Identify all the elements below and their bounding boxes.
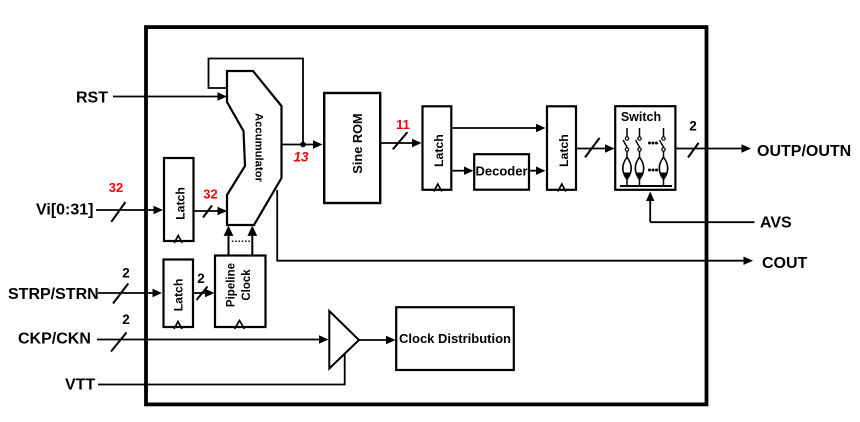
svg-text:2: 2 [122,312,130,327]
svg-text:Pipeline: Pipeline [226,263,238,307]
svg-text:RST: RST [76,90,108,107]
svg-text:Sine ROM: Sine ROM [350,113,365,173]
svg-text:11: 11 [396,117,410,132]
svg-text:Latch: Latch [432,134,446,167]
svg-text:Accumulator: Accumulator [253,113,265,183]
svg-text:STRP/STRN: STRP/STRN [8,286,99,303]
svg-text:CKP/CKN: CKP/CKN [18,331,91,348]
svg-text:Clock: Clock [241,269,253,301]
svg-text:Latch: Latch [172,279,186,312]
svg-text:32: 32 [203,187,217,202]
svg-text:Latch: Latch [174,187,188,220]
svg-text:32: 32 [109,180,123,195]
svg-text:Latch: Latch [557,134,571,167]
svg-text:Clock Distribution: Clock Distribution [399,331,511,346]
svg-text:COUT: COUT [762,255,808,272]
svg-text:13: 13 [293,150,309,165]
svg-text:Vi[0:31]: Vi[0:31] [36,202,94,219]
svg-text:2: 2 [197,271,205,286]
svg-text:Switch: Switch [621,110,661,124]
svg-text:OUTP/OUTN: OUTP/OUTN [757,143,851,160]
svg-text:Decoder: Decoder [475,164,527,179]
svg-text:2: 2 [122,266,130,281]
svg-text:AVS: AVS [760,215,792,232]
svg-text:2: 2 [689,119,697,134]
svg-text:VTT: VTT [65,377,95,394]
